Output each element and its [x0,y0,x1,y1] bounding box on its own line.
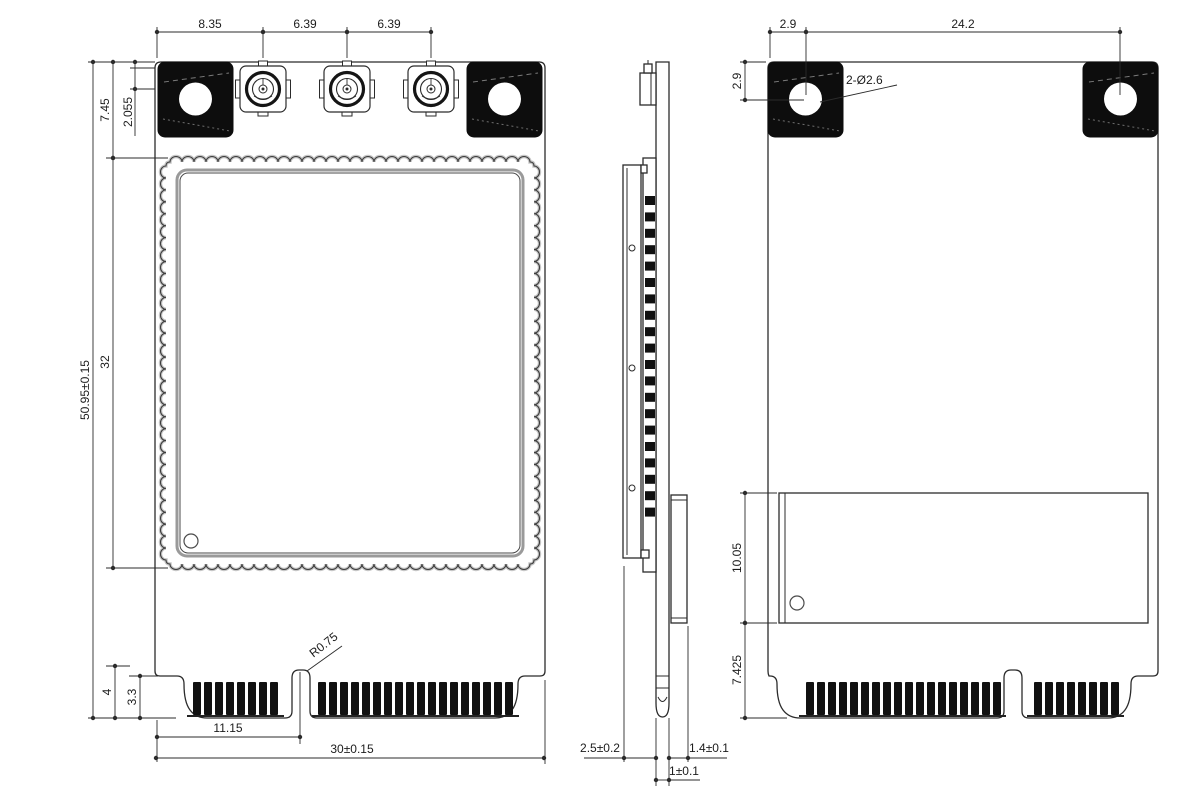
dim-board-height: 50.95±0.15 [78,360,92,420]
mounting-tab-front-right [467,62,542,137]
dim-module-stack-thickness: 2.5±0.2 [580,741,620,755]
label-mounting-holes: 2-Ø2.6 [846,73,883,87]
dim-top-zone-height: 7.45 [98,98,112,122]
front-view [155,61,545,718]
dim-shield-height: 32 [98,355,112,369]
mounting-tab-back-right [1083,62,1158,137]
side-shield-lip-top [641,165,647,173]
side-view [623,60,687,717]
dim-edge-to-antenna1: 8.35 [198,17,222,31]
back-label-sticker [779,493,1148,623]
side-antenna-connector [640,60,656,105]
dim-hole-pitch: 24.2 [951,17,975,31]
dim-notch-depth: 4 [100,688,114,695]
dim-finger-height: 3.3 [125,688,139,705]
antenna-connector-1 [236,61,291,116]
side-shield-lip-bottom [641,550,649,558]
technical-drawing-page: 8.35 6.39 6.39 7.45 2.055 50.95±0.15 32 … [0,0,1200,791]
dim-hole-to-top: 2.9 [730,72,744,89]
dim-pcb-thickness: 1±0.1 [669,764,699,778]
dim-antenna1-to-antenna2: 6.39 [293,17,317,31]
dim-component-side-thickness: 1.4±0.1 [689,741,729,755]
dim-key-offset: 11.15 [213,721,242,735]
drawing-canvas: 8.35 6.39 6.39 7.45 2.055 50.95±0.15 32 … [0,0,1200,791]
dim-label-to-edge: 7.425 [730,655,744,685]
dim-antenna2-to-antenna3: 6.39 [377,17,401,31]
side-label-sticker [671,495,687,623]
back-view [768,62,1158,718]
shield-plate-outer [177,170,523,556]
dim-board-width: 30±0.15 [330,742,374,756]
dim-label-height: 10.05 [730,543,744,573]
pin1-marker [184,534,198,548]
antenna-connector-2 [320,61,375,116]
mounting-tab-front-left [158,62,233,137]
side-shield-can [623,165,641,558]
dim-antenna-center-offset: 2.055 [121,97,135,127]
dim-hole-to-edge: 2.9 [780,17,797,31]
side-pcb [656,62,669,717]
antenna-connector-3 [404,61,459,116]
